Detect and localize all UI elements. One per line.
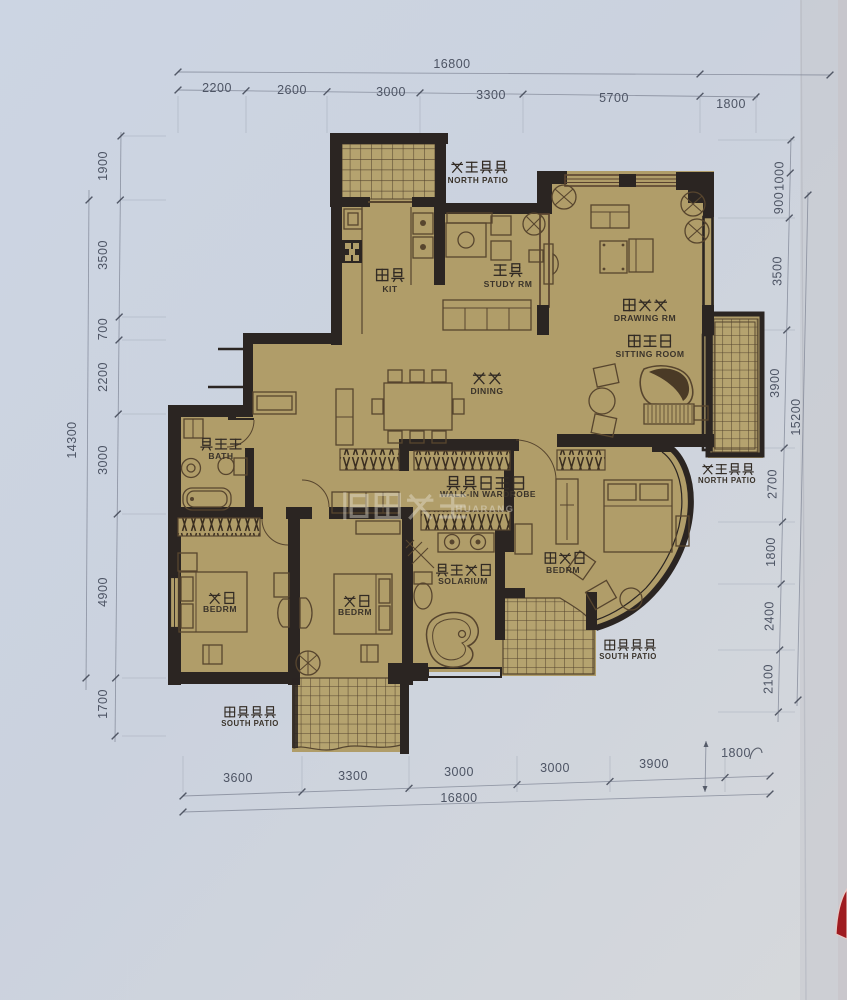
svg-text:STUDY RM: STUDY RM [484, 279, 533, 289]
svg-text:1700: 1700 [96, 689, 110, 719]
svg-text:3500: 3500 [96, 240, 110, 270]
svg-text:4900: 4900 [96, 577, 110, 607]
svg-text:NORTH PATIO: NORTH PATIO [698, 476, 756, 485]
svg-text:HUARANG: HUARANG [455, 504, 514, 515]
svg-text:14300: 14300 [65, 421, 79, 458]
svg-text:2100: 2100 [761, 664, 775, 694]
svg-text:SOLARIUM: SOLARIUM [438, 576, 488, 586]
svg-text:15200: 15200 [789, 398, 803, 435]
svg-text:SOUTH PATIO: SOUTH PATIO [599, 652, 657, 661]
svg-text:SOUTH PATIO: SOUTH PATIO [221, 719, 279, 728]
svg-text:3600: 3600 [223, 771, 253, 785]
svg-text:2200: 2200 [96, 362, 110, 392]
svg-text:DRAWING RM: DRAWING RM [614, 313, 676, 323]
svg-text:900: 900 [772, 192, 786, 214]
svg-text:3000: 3000 [444, 765, 474, 779]
svg-text:5700: 5700 [599, 91, 629, 105]
svg-text:KIT: KIT [382, 284, 398, 294]
svg-text:2700: 2700 [766, 469, 780, 499]
svg-text:3900: 3900 [639, 757, 669, 771]
svg-text:16800: 16800 [440, 791, 477, 805]
svg-text:3900: 3900 [768, 368, 782, 398]
svg-text:1000: 1000 [772, 161, 786, 191]
svg-text:3000: 3000 [96, 445, 110, 475]
svg-text:16800: 16800 [433, 57, 470, 71]
svg-text:3300: 3300 [476, 88, 506, 102]
svg-text:WALK-IN WARDROBE: WALK-IN WARDROBE [440, 489, 536, 499]
svg-text:BEDRM: BEDRM [203, 604, 237, 614]
svg-text:2400: 2400 [763, 601, 777, 631]
svg-text:1800: 1800 [764, 537, 778, 567]
svg-text:2200: 2200 [202, 81, 232, 95]
svg-text:3000: 3000 [376, 85, 406, 99]
svg-text:BEDRM: BEDRM [338, 607, 372, 617]
svg-text:BEDRM: BEDRM [546, 565, 580, 575]
svg-text:BATH: BATH [208, 451, 233, 461]
svg-text:1800: 1800 [716, 97, 746, 111]
svg-text:1800: 1800 [721, 746, 751, 760]
svg-text:SITTING ROOM: SITTING ROOM [615, 349, 684, 359]
svg-text:2600: 2600 [277, 83, 307, 97]
svg-text:NORTH PATIO: NORTH PATIO [448, 176, 509, 185]
svg-text:700: 700 [96, 318, 110, 340]
svg-text:3300: 3300 [338, 769, 368, 783]
svg-text:3500: 3500 [770, 256, 784, 286]
svg-text:DINING: DINING [470, 386, 503, 396]
svg-text:3000: 3000 [540, 761, 570, 775]
svg-text:1900: 1900 [96, 151, 110, 181]
